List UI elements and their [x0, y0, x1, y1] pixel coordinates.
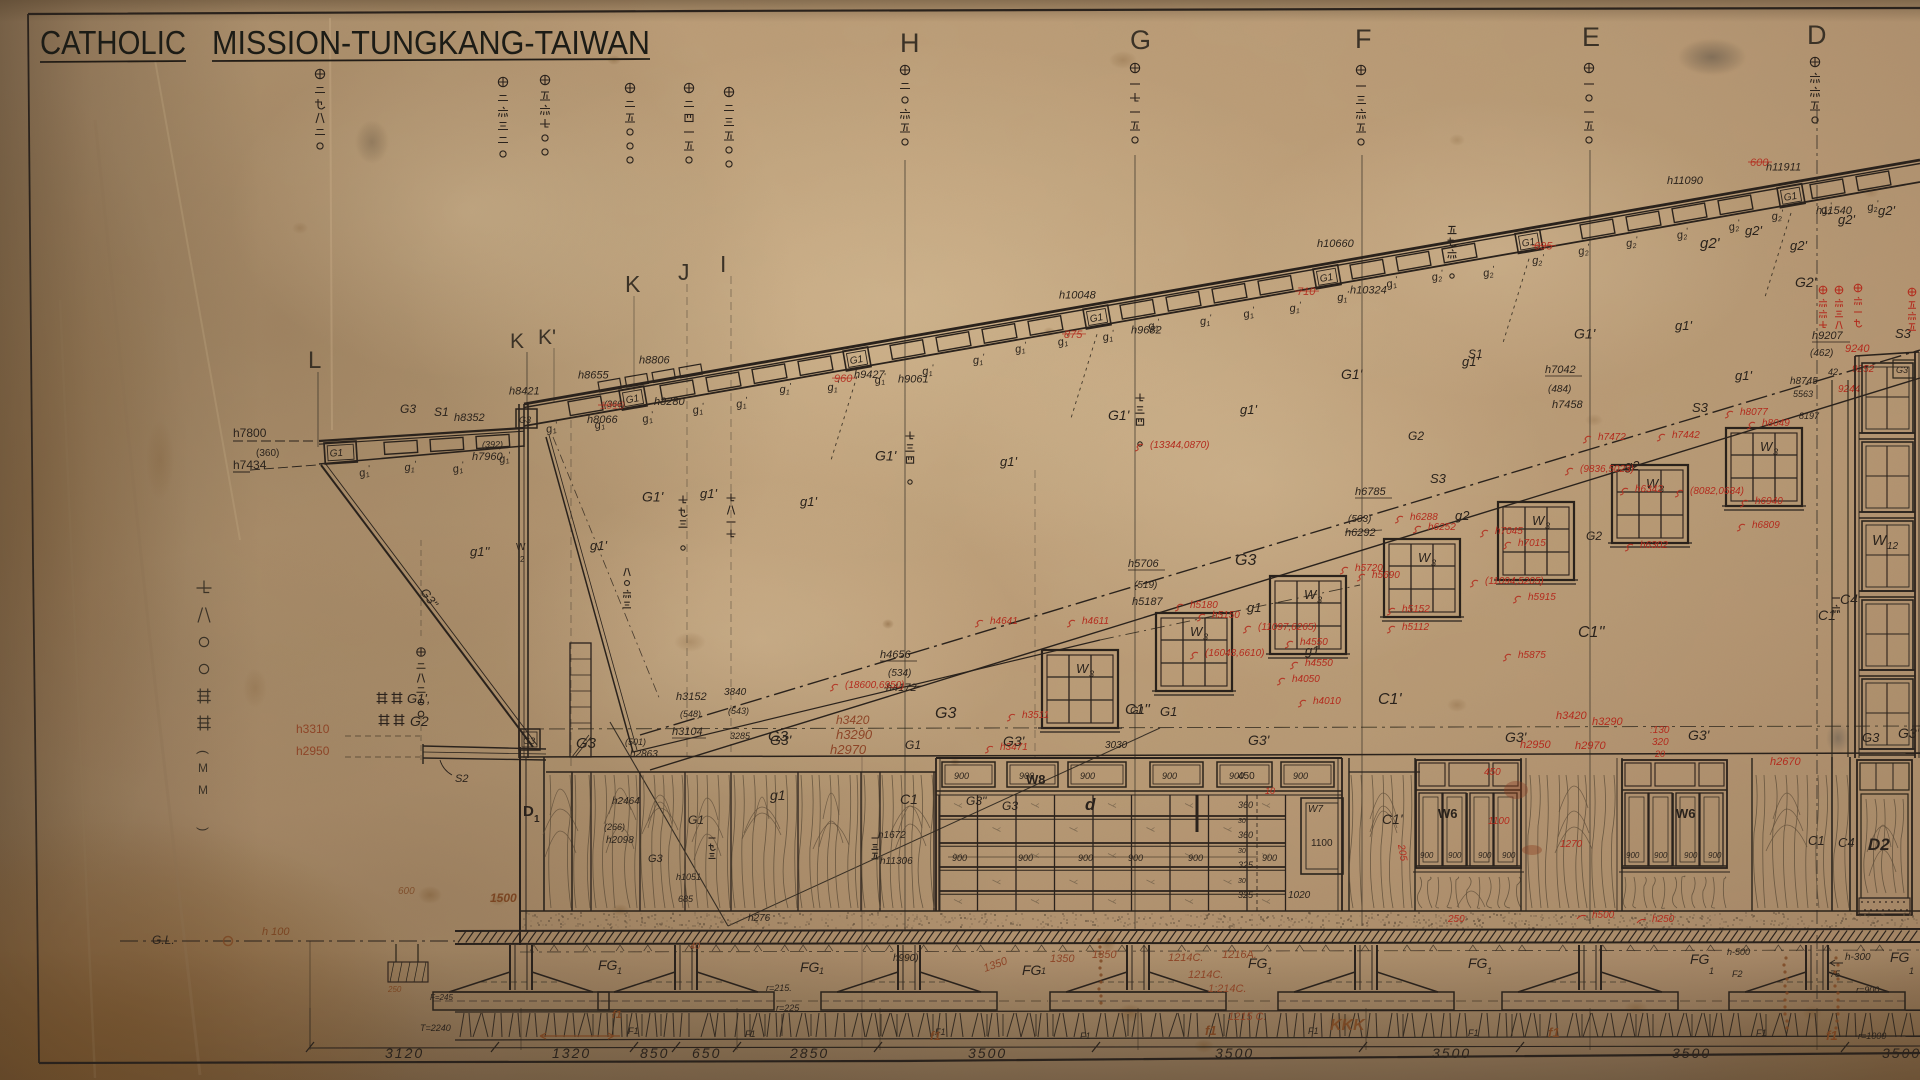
svg-text:h2863: h2863 — [630, 749, 658, 760]
svg-text:f1: f1 — [930, 1029, 941, 1043]
svg-text:h9207: h9207 — [1812, 330, 1843, 342]
svg-text:W: W — [1190, 624, 1204, 639]
svg-text:h8280: h8280 — [654, 396, 685, 408]
svg-text:(: ( — [196, 750, 211, 755]
svg-text:f1: f1 — [1205, 1023, 1217, 1038]
svg-text:h4010: h4010 — [1313, 696, 1341, 707]
svg-text:S1: S1 — [434, 405, 449, 419]
svg-text:h3152: h3152 — [676, 691, 707, 703]
svg-text:h7015: h7015 — [1518, 538, 1546, 549]
svg-text:h5690: h5690 — [1372, 570, 1400, 581]
svg-text:W: W — [1418, 550, 1432, 565]
svg-text:C1'': C1'' — [1578, 624, 1606, 641]
svg-text:h3420: h3420 — [1556, 710, 1587, 722]
svg-text:g2': g2' — [1838, 212, 1855, 227]
svg-text:G1: G1 — [688, 813, 704, 827]
svg-text:900: 900 — [1162, 771, 1177, 781]
svg-text:1350: 1350 — [1092, 949, 1117, 961]
svg-text:h10324: h10324 — [1350, 284, 1387, 296]
svg-text:G3': G3' — [1898, 725, 1920, 741]
svg-text:g2': g2' — [1790, 238, 1807, 253]
svg-text:(392): (392) — [482, 439, 503, 449]
svg-text:G3': G3' — [1248, 732, 1271, 748]
svg-text:3500: 3500 — [968, 1045, 1007, 1061]
svg-text:3500: 3500 — [1672, 1045, 1711, 1061]
svg-text:F: F — [1355, 24, 1372, 54]
svg-text:G1: G1 — [1160, 704, 1177, 719]
svg-text:450: 450 — [1484, 767, 1501, 778]
svg-text:FG: FG — [1690, 951, 1710, 967]
svg-text:h1672: h1672 — [878, 830, 906, 841]
svg-text:h8655: h8655 — [578, 369, 609, 381]
svg-text:h10660: h10660 — [1317, 238, 1355, 250]
svg-text:G2: G2 — [1586, 529, 1602, 543]
svg-text:h6252: h6252 — [1428, 522, 1456, 533]
svg-text:360: 360 — [1238, 800, 1253, 810]
svg-text:h4656: h4656 — [880, 649, 911, 661]
svg-text:G3: G3 — [1862, 730, 1880, 745]
svg-text:h 100: h 100 — [262, 926, 290, 938]
svg-text:FG: FG — [1022, 962, 1042, 978]
svg-text:L: L — [308, 347, 321, 374]
svg-text:h276: h276 — [748, 913, 771, 924]
svg-text:W6: W6 — [1438, 806, 1458, 821]
svg-text:r=1000: r=1000 — [1858, 1031, 1886, 1041]
svg-text:G3: G3 — [648, 853, 664, 865]
svg-text:3500: 3500 — [1215, 1045, 1254, 1061]
svg-text:G1: G1 — [1089, 312, 1104, 325]
svg-text:h7045: h7045 — [1495, 526, 1523, 537]
svg-text:W: W — [516, 542, 526, 553]
svg-text:g1': g1' — [800, 494, 817, 509]
svg-text:G3: G3 — [523, 736, 535, 746]
svg-text:f1: f1 — [612, 1009, 622, 1021]
svg-text:H: H — [900, 28, 920, 58]
svg-text:h2970: h2970 — [830, 742, 867, 757]
svg-text:T=2240: T=2240 — [420, 1023, 451, 1033]
svg-text:250: 250 — [387, 985, 402, 994]
svg-text:h2950: h2950 — [1520, 739, 1551, 751]
svg-text:900: 900 — [1684, 851, 1698, 860]
svg-text:h6342: h6342 — [1635, 484, 1663, 495]
svg-text:h11306: h11306 — [880, 856, 913, 867]
svg-text:g1': g1' — [1735, 368, 1752, 383]
svg-text:G3: G3 — [400, 402, 416, 416]
svg-text:f1: f1 — [1548, 1025, 1560, 1040]
svg-text:h8049: h8049 — [1762, 418, 1790, 429]
svg-text:C1: C1 — [1808, 833, 1825, 848]
svg-text:D: D — [523, 803, 534, 820]
svg-text:S3: S3 — [1692, 400, 1709, 415]
svg-text:G.L.: G.L. — [152, 933, 175, 947]
svg-text:3: 3 — [1773, 447, 1778, 457]
svg-text:1100: 1100 — [1488, 816, 1510, 827]
svg-text:g2': g2' — [1700, 235, 1721, 252]
svg-text:f1: f1 — [1826, 1028, 1838, 1043]
svg-text:h8421: h8421 — [509, 385, 540, 397]
svg-text:42: 42 — [1828, 367, 1838, 377]
svg-text:h7800: h7800 — [233, 426, 267, 440]
svg-text:3120: 3120 — [385, 1045, 424, 1061]
svg-text:650: 650 — [692, 1045, 721, 1061]
svg-text:G1: G1 — [849, 354, 864, 367]
svg-text:30: 30 — [1238, 878, 1246, 885]
svg-text:M: M — [198, 783, 208, 797]
svg-text:(534): (534) — [888, 668, 911, 679]
svg-text:(503): (503) — [1348, 514, 1371, 525]
svg-text:(266): (266) — [604, 822, 625, 832]
svg-text:G1': G1' — [1574, 326, 1597, 342]
svg-text:h4641: h4641 — [990, 616, 1018, 627]
svg-text:850: 850 — [640, 1045, 669, 1061]
svg-text:g1': g1' — [1675, 318, 1692, 333]
svg-text:3030: 3030 — [1105, 740, 1128, 751]
svg-text:g1: g1 — [770, 787, 786, 803]
svg-text:(13344,0870): (13344,0870) — [1150, 440, 1210, 451]
svg-text:G1: G1 — [329, 448, 343, 460]
svg-text:h250: h250 — [1652, 914, 1675, 925]
svg-text:900: 900 — [1448, 851, 1462, 860]
svg-text:325: 325 — [1238, 860, 1254, 870]
svg-text:W6: W6 — [1676, 806, 1696, 821]
svg-text:320: 320 — [1652, 737, 1669, 748]
svg-text:h7472: h7472 — [1598, 432, 1626, 443]
svg-text::130: :130 — [1650, 725, 1670, 736]
svg-text:1214C.: 1214C. — [1188, 969, 1223, 981]
svg-text:3: 3 — [1203, 632, 1208, 642]
svg-text:h6940: h6940 — [1755, 496, 1783, 507]
svg-text:W8: W8 — [1026, 772, 1046, 787]
svg-text:G2: G2 — [410, 713, 429, 729]
svg-text:G1': G1' — [642, 488, 665, 504]
svg-text:g1'': g1'' — [470, 544, 490, 559]
svg-text:F1: F1 — [1308, 1026, 1319, 1036]
svg-text:S2: S2 — [455, 773, 468, 785]
svg-text:G3: G3 — [1896, 365, 1908, 375]
svg-text:G3: G3 — [519, 415, 531, 425]
svg-text:h4550: h4550 — [1300, 637, 1328, 648]
svg-text:1215 C.: 1215 C. — [1228, 1011, 1267, 1023]
svg-text:G2': G2' — [1795, 274, 1818, 290]
svg-text:3: 3 — [1089, 669, 1094, 679]
svg-text:h3420: h3420 — [836, 713, 870, 727]
svg-text:FG: FG — [1890, 949, 1910, 965]
svg-text:10: 10 — [1265, 786, 1275, 796]
svg-text:710: 710 — [1297, 286, 1316, 298]
svg-text:9240: 9240 — [1845, 343, 1870, 355]
svg-text:(11094,5205): (11094,5205) — [1485, 576, 1544, 587]
svg-text:G2: G2 — [1408, 429, 1424, 443]
svg-text:3: 3 — [1545, 521, 1550, 531]
svg-text:W: W — [1760, 439, 1774, 454]
svg-text:h3511: h3511 — [1022, 710, 1049, 721]
svg-text:G: G — [1130, 25, 1151, 55]
svg-text:h7458: h7458 — [1552, 399, 1583, 411]
svg-text:1: 1 — [1909, 966, 1914, 976]
svg-text:30: 30 — [1238, 818, 1246, 825]
svg-text:FG: FG — [598, 957, 618, 973]
svg-text:W: W — [1304, 587, 1318, 602]
svg-text:h-500: h-500 — [1727, 947, 1750, 957]
svg-text:K: K — [510, 330, 524, 353]
svg-text:2850: 2850 — [789, 1045, 829, 1061]
svg-text:1: 1 — [534, 814, 540, 825]
svg-text:E: E — [1582, 22, 1600, 52]
svg-text:h8352: h8352 — [454, 412, 485, 424]
svg-text:900: 900 — [1262, 853, 1277, 863]
svg-text:h1051: h1051 — [676, 872, 701, 882]
svg-text:G1: G1 — [625, 393, 640, 406]
svg-text:S1: S1 — [1468, 347, 1483, 361]
svg-text:M: M — [198, 761, 208, 775]
svg-text:1214C.: 1214C. — [1168, 952, 1203, 964]
svg-text:250: 250 — [1447, 914, 1465, 925]
svg-text:(8082,0684): (8082,0684) — [1690, 486, 1744, 497]
svg-text:g1': g1' — [1240, 402, 1257, 417]
svg-text:3500: 3500 — [1882, 1045, 1920, 1061]
svg-text:450: 450 — [1238, 771, 1255, 782]
svg-text:W: W — [1076, 661, 1090, 676]
svg-text:h2950: h2950 — [296, 744, 330, 758]
svg-text:h5915: h5915 — [1528, 592, 1556, 603]
svg-text:h11090: h11090 — [1667, 175, 1704, 187]
svg-text:G1': G1' — [1341, 366, 1364, 382]
svg-text:W: W — [1532, 513, 1546, 528]
svg-text:900: 900 — [1078, 853, 1093, 863]
svg-text:g2': g2' — [1745, 223, 1762, 238]
svg-text:1: 1 — [1709, 966, 1714, 976]
svg-text:1270: 1270 — [1560, 839, 1583, 850]
svg-text:900: 900 — [1293, 771, 1308, 781]
svg-text:900: 900 — [1626, 851, 1640, 860]
svg-text:F1: F1 — [745, 1029, 756, 1039]
svg-text:900: 900 — [1502, 851, 1516, 860]
svg-text:h3290: h3290 — [836, 727, 873, 742]
svg-text:h5152: h5152 — [1402, 604, 1430, 615]
svg-text:h8745: h8745 — [1790, 376, 1818, 387]
svg-text:1: 1 — [1041, 966, 1046, 976]
svg-text:I: I — [720, 251, 726, 277]
svg-text:G1: G1 — [1130, 705, 1145, 717]
svg-text:900: 900 — [1420, 851, 1434, 860]
svg-text:h4611: h4611 — [1082, 616, 1109, 627]
svg-text:1010: 1010 — [600, 400, 625, 412]
svg-text:(18600,6950): (18600,6950) — [845, 680, 905, 691]
svg-text:1320: 1320 — [552, 1045, 591, 1061]
svg-text:h7042: h7042 — [1545, 364, 1576, 376]
svg-text:695: 695 — [1534, 241, 1553, 253]
svg-text:S3: S3 — [1430, 471, 1447, 486]
svg-text:5563: 5563 — [1793, 389, 1813, 399]
svg-text:W7: W7 — [1308, 804, 1323, 815]
svg-text:h8077: h8077 — [1740, 407, 1768, 418]
svg-text:h2464: h2464 — [612, 796, 640, 807]
svg-text:G1: G1 — [1319, 272, 1334, 285]
svg-text:F1: F1 — [1080, 1031, 1091, 1041]
svg-text:20: 20 — [1654, 749, 1665, 759]
svg-text:3500: 3500 — [1432, 1045, 1471, 1061]
svg-text:1:214C.: 1:214C. — [1208, 983, 1247, 995]
svg-text:12: 12 — [1887, 541, 1899, 552]
svg-text:900: 900 — [952, 853, 967, 863]
svg-text:325: 325 — [1238, 890, 1254, 900]
svg-text:G3': G3' — [770, 732, 793, 748]
svg-text:h2098: h2098 — [606, 835, 634, 846]
svg-text:C1: C1 — [900, 791, 918, 807]
svg-text:1216A.: 1216A. — [1222, 949, 1257, 961]
svg-text:900: 900 — [1018, 853, 1033, 863]
svg-text:K: K — [625, 271, 641, 297]
svg-text:h7434: h7434 — [233, 458, 267, 472]
svg-text:h2970: h2970 — [1575, 740, 1606, 752]
svg-text:360: 360 — [1238, 830, 1253, 840]
svg-text:g2': g2' — [1878, 203, 1895, 218]
svg-text:3840: 3840 — [724, 687, 747, 698]
svg-text:S3: S3 — [1895, 326, 1912, 341]
svg-text:G3: G3 — [1235, 552, 1256, 569]
svg-text:CATHOLIC: CATHOLIC — [40, 24, 186, 61]
svg-text:G1: G1 — [905, 738, 921, 752]
svg-text:G3': G3' — [1003, 733, 1026, 749]
svg-text:1: 1 — [1267, 966, 1272, 976]
svg-text:h3104: h3104 — [672, 726, 703, 738]
svg-text:(543): (543) — [728, 706, 749, 716]
svg-text:h10048: h10048 — [1059, 289, 1097, 301]
svg-text:C4: C4 — [1838, 835, 1855, 850]
svg-text:(548): (548) — [680, 709, 701, 719]
svg-text:900: 900 — [1188, 853, 1203, 863]
svg-text:r=900: r=900 — [1856, 985, 1879, 995]
svg-text:1: 1 — [617, 966, 622, 976]
svg-text:G1': G1' — [875, 448, 898, 464]
svg-text:1500: 1500 — [490, 891, 517, 905]
svg-text:(462): (462) — [1810, 348, 1833, 359]
svg-text:g1': g1' — [590, 538, 607, 553]
svg-text:C1': C1' — [1378, 691, 1402, 708]
svg-text:9244: 9244 — [1838, 384, 1861, 395]
svg-text:F1: F1 — [628, 1026, 639, 1036]
svg-text:h3310: h3310 — [296, 722, 330, 736]
svg-text:900: 900 — [1080, 771, 1095, 781]
svg-text:MISSION-TUNGKANG-TAIWAN: MISSION-TUNGKANG-TAIWAN — [212, 24, 650, 61]
svg-text:h2670: h2670 — [1770, 756, 1801, 768]
svg-text:D: D — [1807, 20, 1827, 50]
svg-text:3: 3 — [1317, 595, 1322, 605]
svg-text:C1: C1 — [1818, 607, 1836, 623]
svg-text:F=245: F=245 — [430, 993, 453, 1002]
svg-text:3: 3 — [1431, 558, 1436, 568]
svg-text:K': K' — [538, 326, 556, 349]
svg-text:900: 900 — [954, 771, 969, 781]
svg-text:FG: FG — [800, 959, 820, 975]
svg-text:G1': G1' — [1108, 407, 1131, 423]
svg-text:W: W — [1872, 532, 1888, 549]
svg-text:C1': C1' — [1382, 811, 1404, 827]
svg-text:h5112: h5112 — [1402, 622, 1430, 633]
svg-text:1350: 1350 — [1050, 953, 1075, 965]
svg-text:h6302: h6302 — [1640, 540, 1668, 551]
svg-text:KKK: KKK — [1330, 1017, 1366, 1034]
svg-text:(484): (484) — [1548, 384, 1571, 395]
svg-text:F1: F1 — [1468, 1028, 1479, 1038]
svg-text:1: 1 — [819, 966, 824, 976]
svg-text:h6785: h6785 — [1355, 486, 1386, 498]
svg-text:G3: G3 — [1002, 799, 1018, 813]
svg-text:h5706: h5706 — [1128, 558, 1159, 570]
svg-text:600: 600 — [398, 886, 415, 897]
svg-text:30: 30 — [1238, 848, 1246, 855]
svg-text:(519): (519) — [1134, 580, 1157, 591]
svg-text:): ) — [196, 827, 211, 831]
svg-text:(9836,5023): (9836,5023) — [1580, 464, 1634, 475]
svg-text:h5150: h5150 — [1212, 610, 1240, 621]
svg-text:G3': G3' — [1688, 727, 1711, 743]
svg-text:h6809: h6809 — [1752, 520, 1780, 531]
svg-text:d: d — [1085, 795, 1096, 814]
svg-text:h990): h990) — [893, 953, 919, 964]
svg-text:(16048,6610): (16048,6610) — [1205, 648, 1265, 659]
svg-text:h8806: h8806 — [639, 355, 670, 367]
svg-text:1: 1 — [1487, 966, 1492, 976]
svg-text:h4050: h4050 — [1292, 674, 1320, 685]
svg-text:2: 2 — [520, 555, 525, 564]
svg-text:h5187: h5187 — [1132, 596, 1163, 608]
svg-text:FG: FG — [1468, 955, 1488, 971]
svg-text:(501): (501) — [625, 737, 646, 747]
svg-text:900: 900 — [1654, 851, 1668, 860]
svg-text:900: 900 — [1128, 853, 1143, 863]
svg-text:1020: 1020 — [1288, 890, 1311, 901]
svg-text:F2: F2 — [1732, 969, 1743, 979]
svg-text:h500: h500 — [1592, 910, 1615, 921]
svg-text:G3'': G3'' — [966, 794, 987, 808]
svg-text:G1: G1 — [1783, 191, 1798, 204]
svg-text:h3290: h3290 — [1592, 716, 1623, 728]
svg-text:h6292: h6292 — [1345, 527, 1376, 539]
svg-text:900: 900 — [1708, 851, 1722, 860]
svg-text:D2: D2 — [1868, 835, 1890, 854]
svg-text:h-300: h-300 — [1845, 952, 1871, 963]
svg-text:600: 600 — [1750, 157, 1769, 169]
svg-text:r=225: r=225 — [776, 1003, 800, 1013]
svg-text:900: 900 — [1478, 851, 1492, 860]
svg-text:685: 685 — [678, 894, 694, 904]
svg-text:h4550: h4550 — [1305, 658, 1333, 669]
svg-text:(11097,6265): (11097,6265) — [1258, 622, 1317, 633]
svg-text:r=215.: r=215. — [766, 983, 792, 993]
svg-text:8197: 8197 — [1799, 411, 1820, 421]
svg-text:h7442: h7442 — [1672, 430, 1700, 441]
svg-text:J: J — [678, 259, 690, 285]
svg-text:3285: 3285 — [730, 731, 751, 741]
svg-text:F1: F1 — [1756, 1028, 1767, 1038]
svg-text:40: 40 — [690, 941, 700, 951]
svg-text:G3: G3 — [576, 735, 597, 752]
svg-text:h11911: h11911 — [1766, 162, 1801, 174]
svg-text:g1': g1' — [700, 486, 717, 501]
svg-text:h5875: h5875 — [1518, 650, 1546, 661]
svg-text:G3: G3 — [935, 705, 956, 722]
svg-text:1100: 1100 — [1311, 838, 1333, 849]
svg-text:g1': g1' — [1000, 454, 1017, 469]
